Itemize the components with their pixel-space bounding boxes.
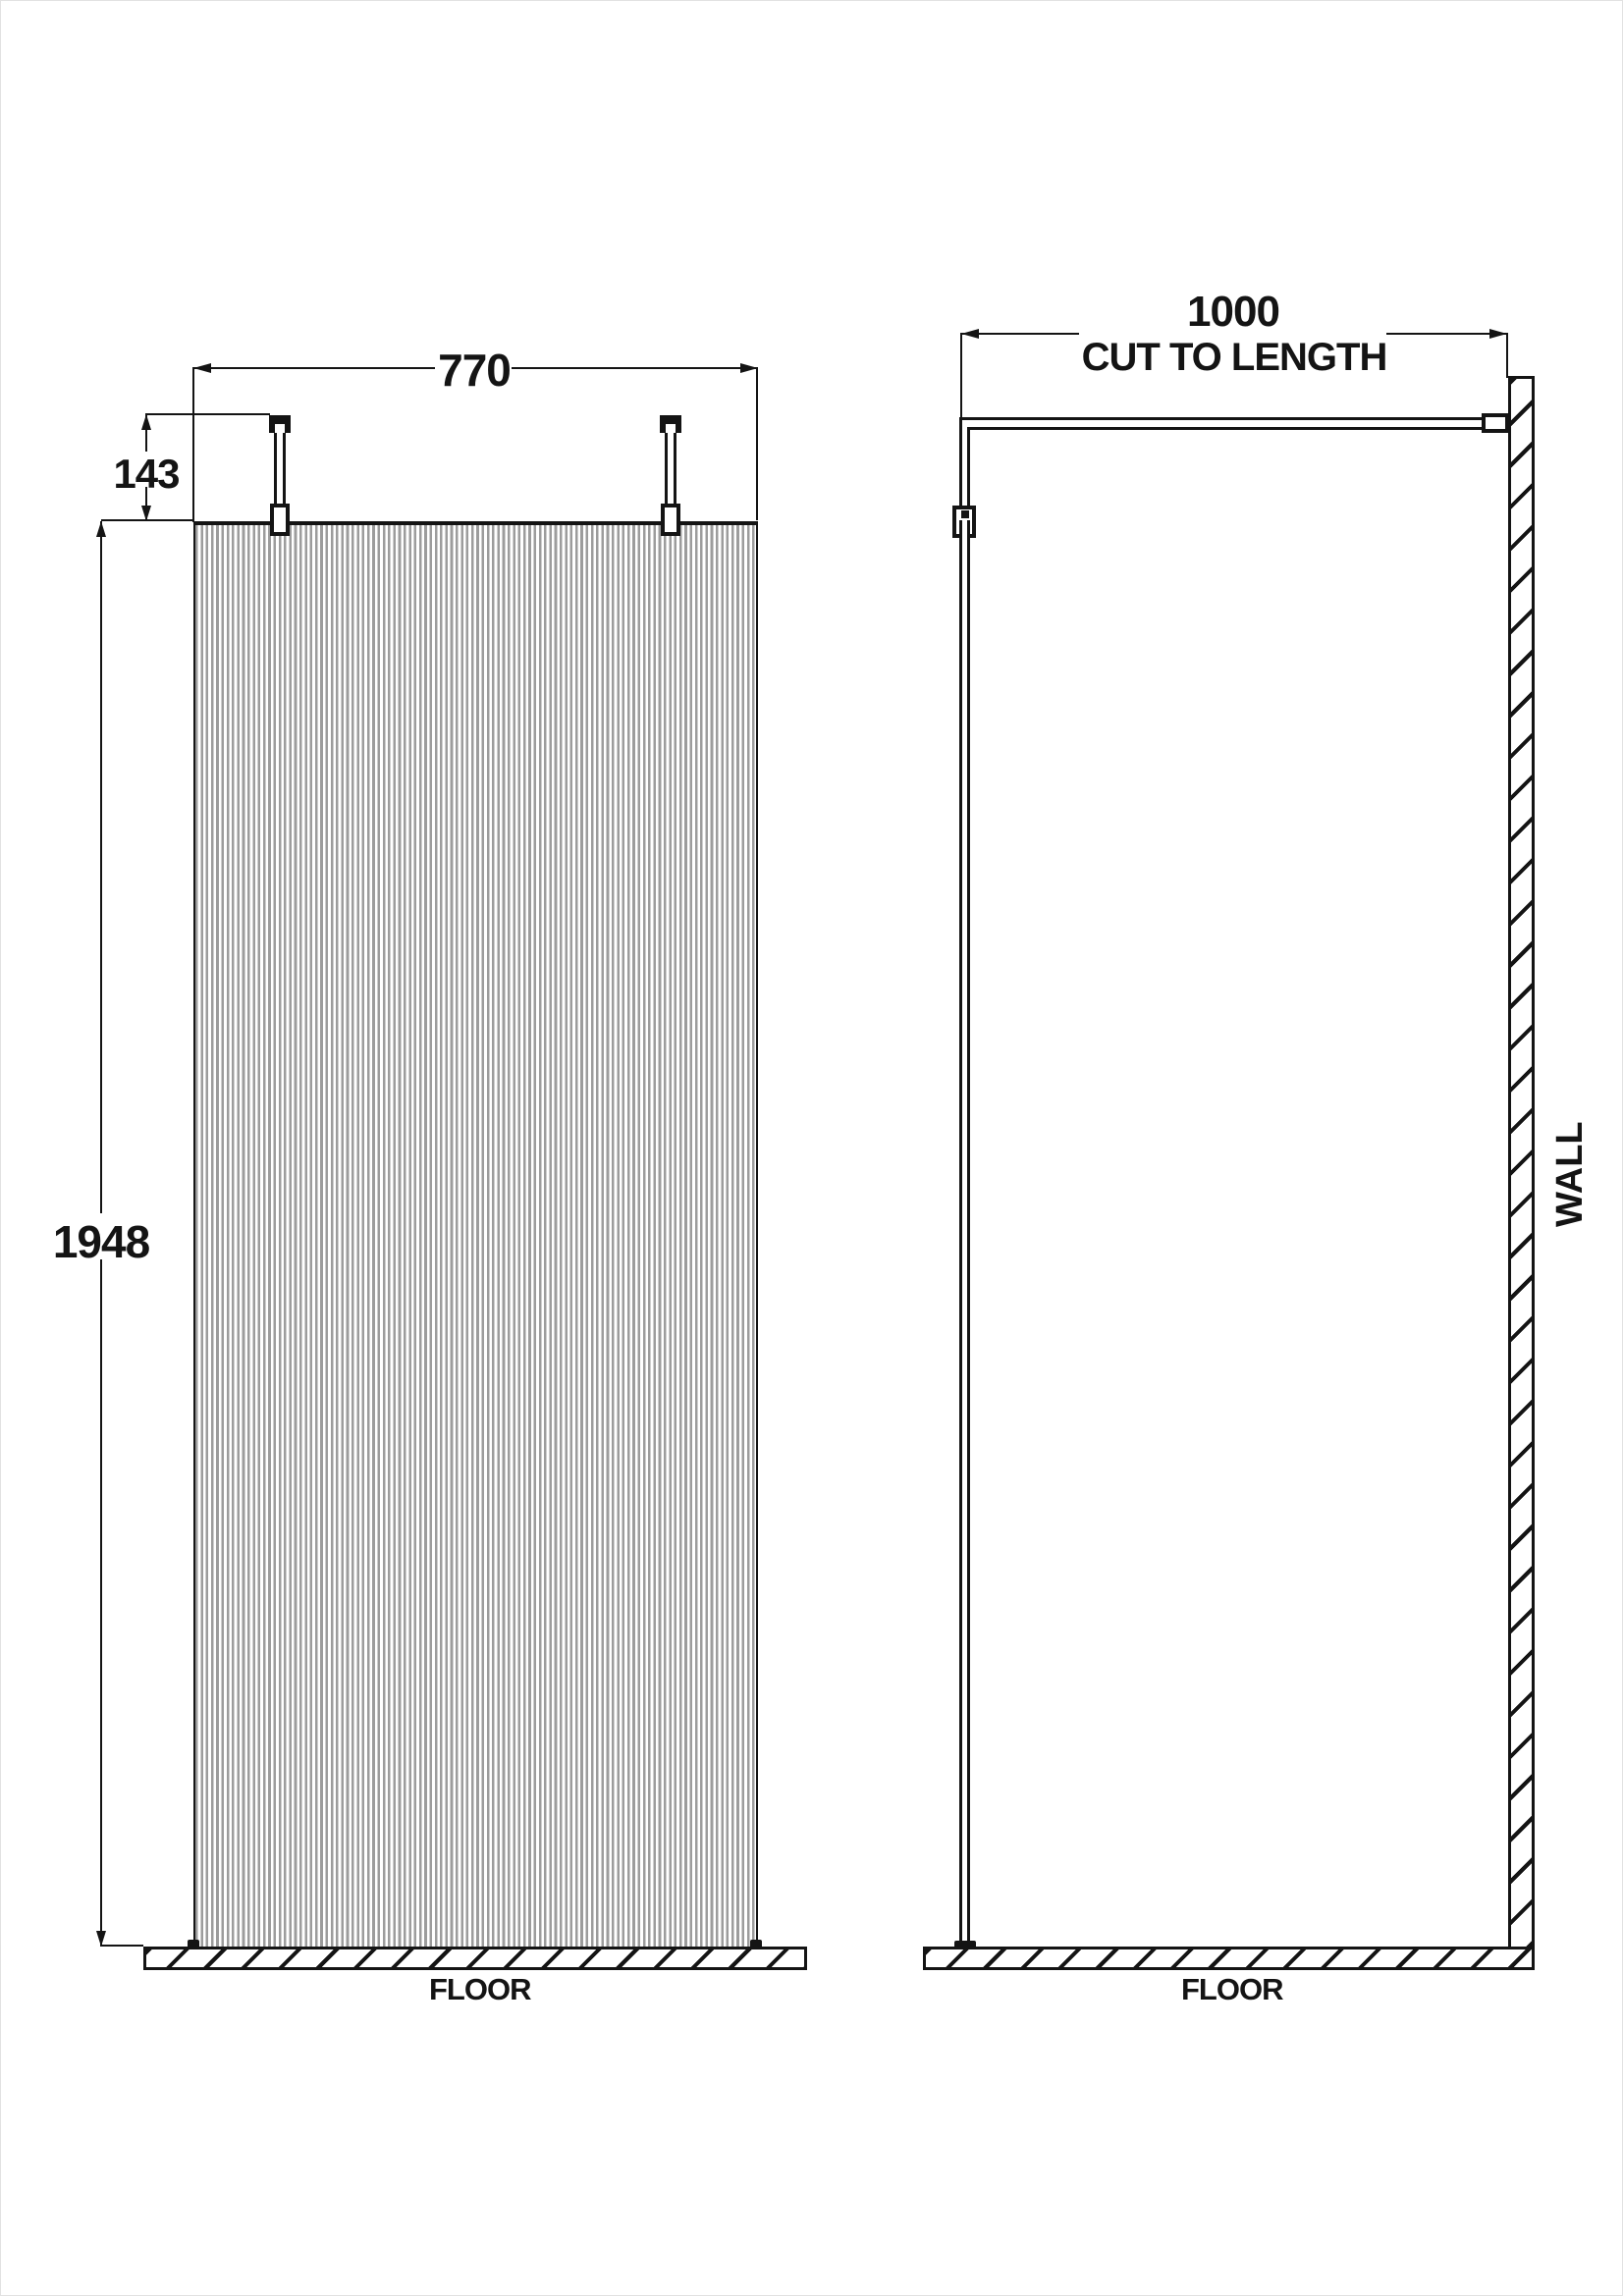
dim-1948-arrow-up [96, 521, 106, 537]
dim-1948-ext-bottom [101, 1945, 143, 1947]
support-arm-bottom-edge [970, 427, 1482, 430]
side-post-foot [954, 1941, 976, 1948]
floor-section-front [143, 1947, 807, 1970]
dim-143-ext-top [145, 413, 270, 415]
side-post-inner-edge [967, 427, 970, 1943]
dim-1948-ext-top [101, 519, 193, 521]
support-post-left-clamp [270, 504, 290, 536]
side-post-clamp-screw [961, 510, 969, 518]
wall-section [1508, 376, 1535, 1970]
side-post-clamp-channel [959, 520, 970, 538]
side-post-outer-edge [959, 417, 962, 1943]
dim-1000-label: 1000 [1184, 291, 1282, 334]
technical-drawing-canvas: FLOOR 770 143 1948 WALL FLOOR [0, 0, 1623, 2296]
dim-143-label: 143 [107, 454, 186, 495]
dim-1000-ext-right [1506, 333, 1508, 378]
dim-1000-arrow-left [961, 329, 979, 339]
dim-770-line-right [512, 367, 758, 369]
dim-1000-line-left [961, 333, 1079, 335]
dim-1948-label: 1948 [52, 1219, 150, 1264]
dim-143-arrow-up [141, 414, 151, 430]
floor-section-side [923, 1947, 1535, 1970]
dim-1948-line-top [100, 521, 102, 1213]
dim-1948-line-bottom [100, 1259, 102, 1947]
dim-1000-arrow-right [1489, 329, 1507, 339]
dim-770-ext-right [756, 367, 758, 520]
dim-770-arrow-left [193, 363, 211, 373]
support-post-right-cap [660, 415, 681, 433]
support-post-left-cap-notch [275, 424, 285, 433]
support-post-right-clamp [661, 504, 680, 536]
support-post-right-cap-notch [666, 424, 676, 433]
fluted-glass-panel [193, 521, 758, 1947]
support-arm-top-edge [959, 417, 1482, 420]
dim-770-label: 770 [425, 347, 523, 393]
dim-770-ext-left [192, 367, 194, 522]
support-post-left-cap [269, 415, 291, 433]
support-post-right-stem [665, 433, 676, 504]
dim-770-line-left [193, 367, 435, 369]
wall-label: WALL [1551, 1129, 1589, 1227]
support-post-left-stem [274, 433, 286, 504]
wall-bracket [1482, 413, 1509, 433]
floor-label-side: FLOOR [1181, 1974, 1279, 2004]
cut-to-length-label: CUT TO LENGTH [1077, 338, 1391, 377]
floor-label-front: FLOOR [429, 1974, 527, 2004]
dim-1000-ext-left [960, 333, 962, 417]
